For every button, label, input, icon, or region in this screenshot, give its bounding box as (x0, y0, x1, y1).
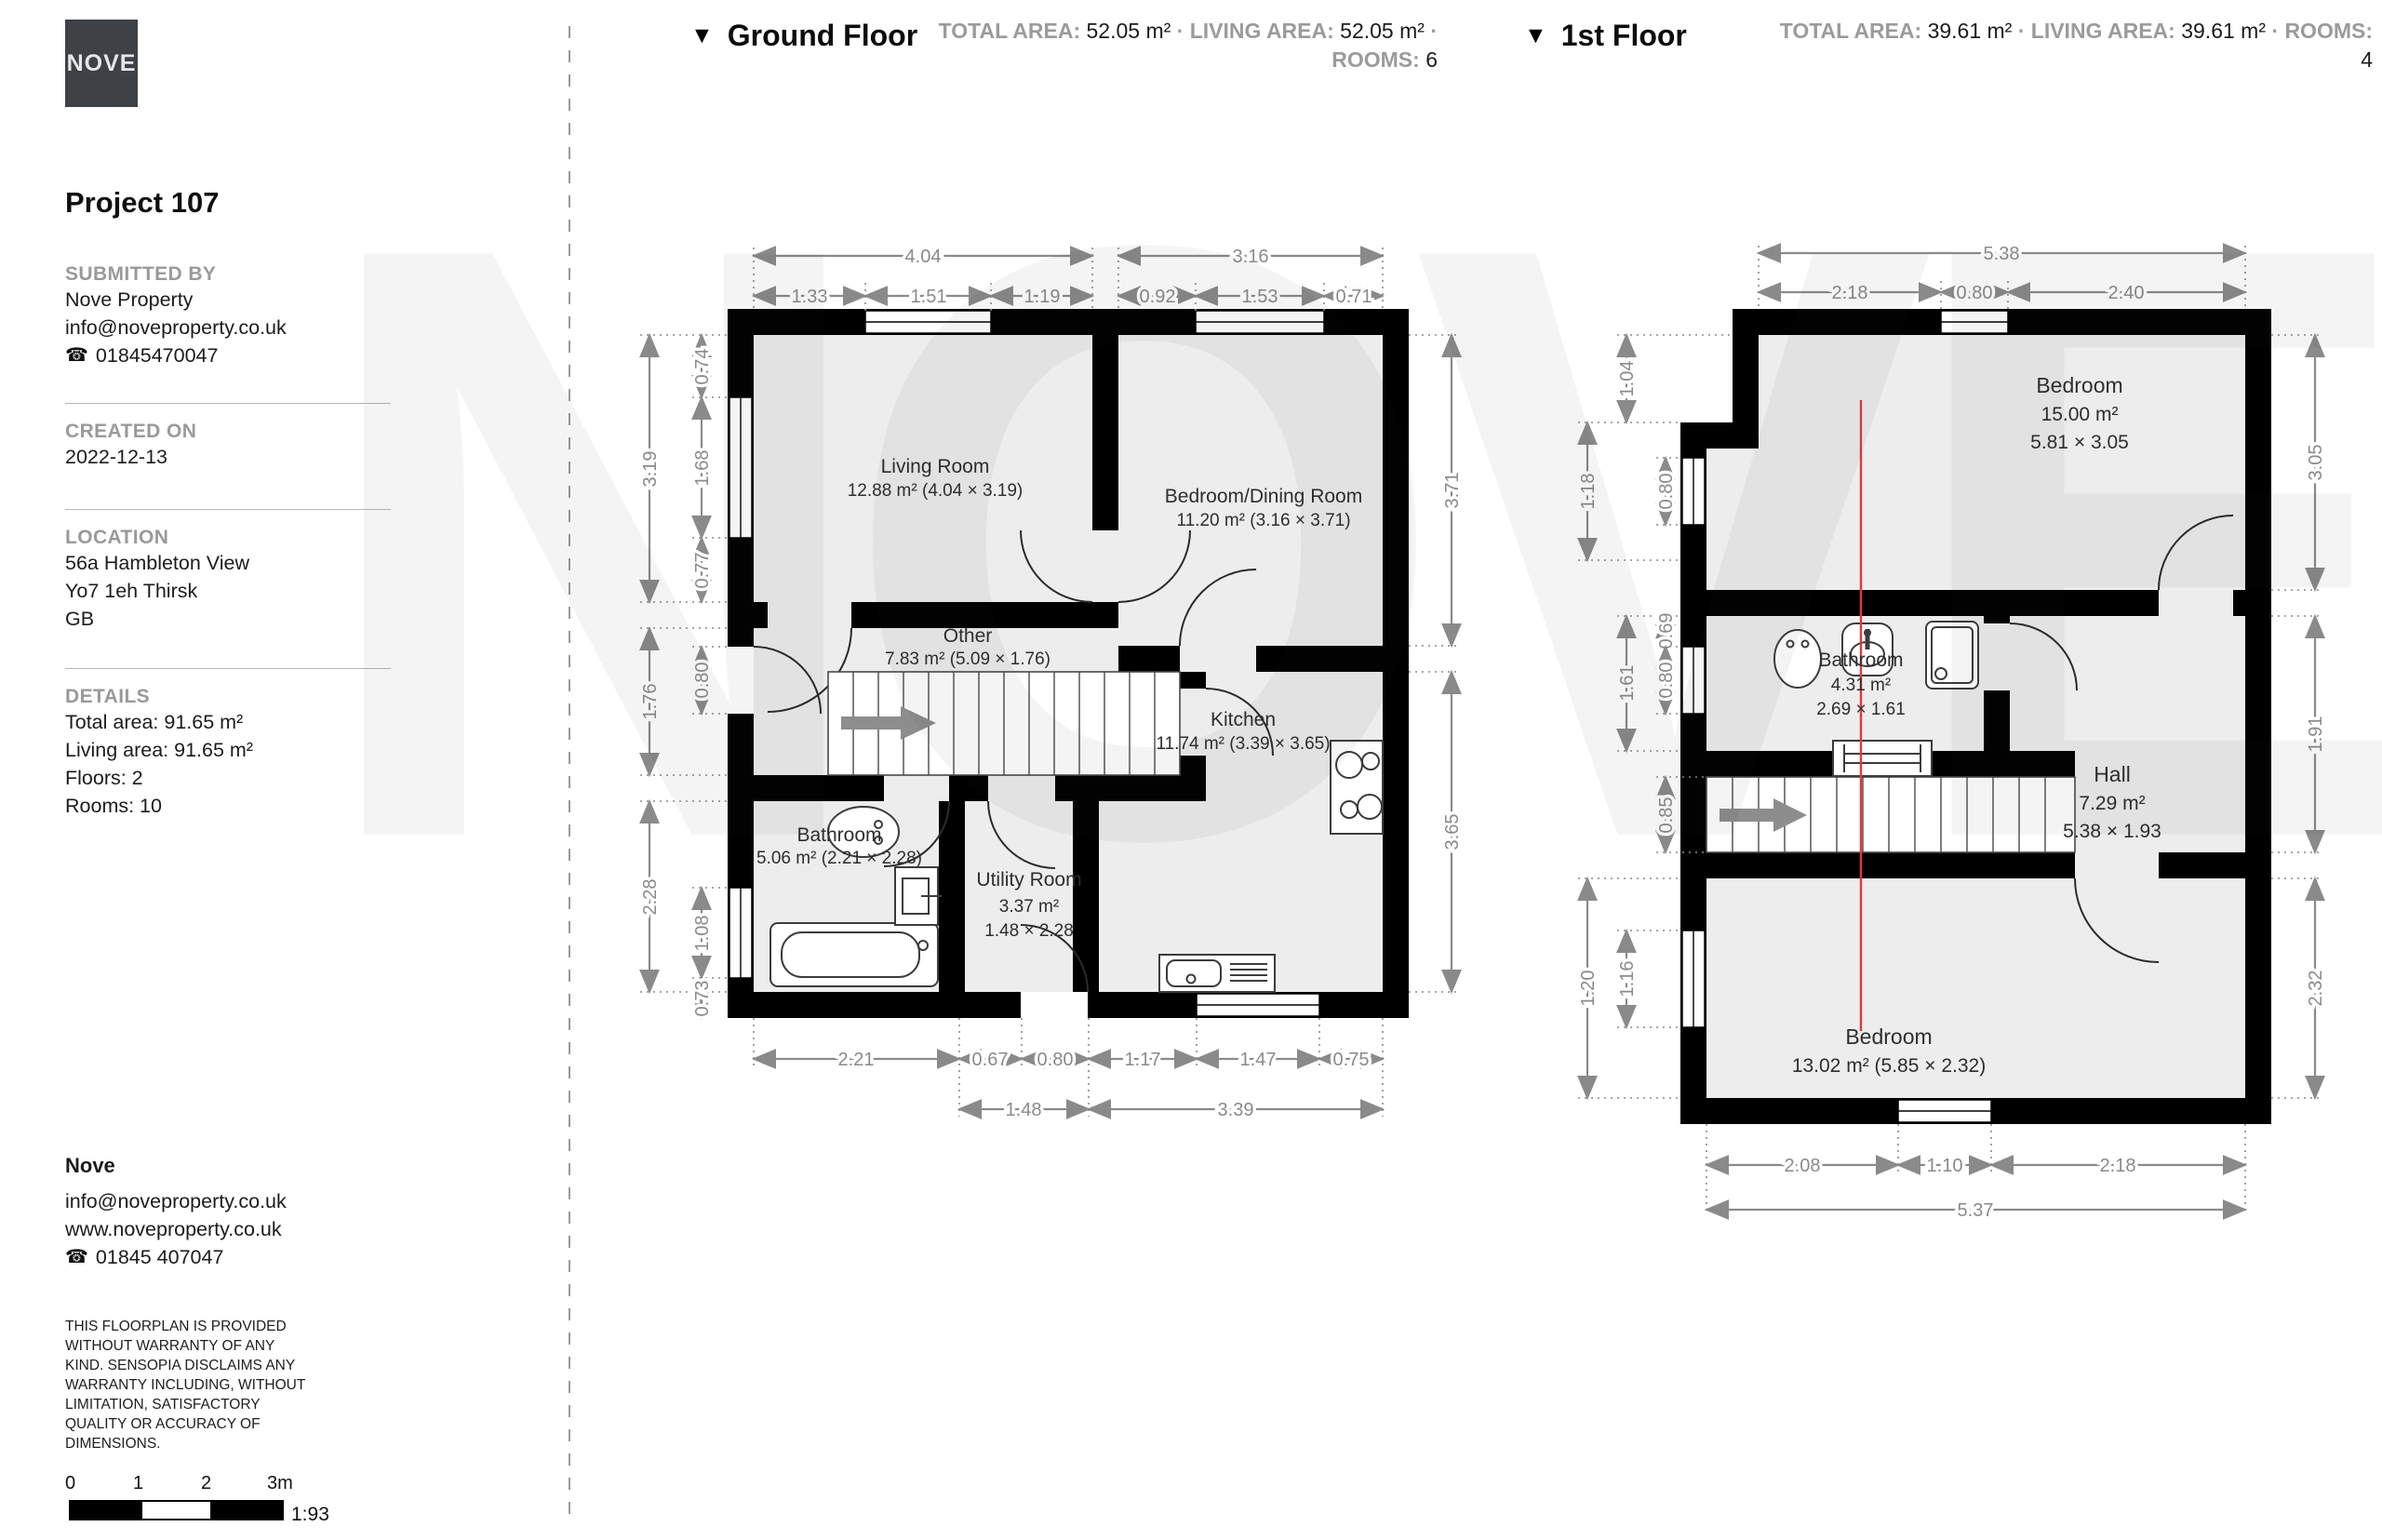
svg-text:1.61: 1.61 (1617, 665, 1638, 702)
svg-text:0.80: 0.80 (1037, 1050, 1074, 1070)
stats-separator: · (2018, 19, 2026, 43)
scale-tick-0: 0 (65, 1473, 75, 1494)
project-title: Project 107 (65, 186, 219, 220)
room-label-living: Living Room (881, 456, 990, 477)
svg-text:0.80: 0.80 (692, 663, 713, 699)
submitted-by-email: info@noveproperty.co.uk (65, 314, 287, 341)
ff-total-area-value: 39.61 m² (1928, 19, 2013, 43)
svg-text:1.20: 1.20 (1578, 971, 1599, 1007)
section-divider (65, 668, 391, 669)
scale-tick-3: 3m (267, 1473, 293, 1494)
room-area-utility: 3.37 m² (999, 897, 1059, 917)
room-dims-utility: 1.48 × 2.28 (984, 921, 1074, 941)
created-on-label: CREATED ON (65, 421, 196, 443)
room-area-kitchen: 11.74 m² (3.39 × 3.65) (1156, 734, 1330, 754)
created-on-date: 2022-12-13 (65, 443, 196, 471)
gf-stairs (828, 672, 1180, 775)
room-label-bedroom-top: Bedroom (2036, 373, 2122, 397)
stats-separator: · (1430, 19, 1438, 43)
floor-marker-icon: ▼ (1524, 22, 1547, 49)
scale-tick-1: 1 (133, 1473, 143, 1494)
svg-text:1.16: 1.16 (1617, 961, 1638, 998)
svg-text:1.76: 1.76 (640, 684, 661, 720)
ff-toilet-icon (1774, 630, 1821, 688)
ff-shower-icon (1926, 622, 1978, 689)
location-section: LOCATION 56a Hambleton View Yo7 1eh Thir… (65, 527, 249, 633)
gf-rooms-label: ROOMS: (1332, 47, 1420, 72)
svg-text:0.71: 0.71 (1336, 287, 1372, 307)
ff-living-area-label: LIVING AREA: (2031, 19, 2175, 43)
svg-text:0.80: 0.80 (1957, 283, 1993, 303)
room-area-bathroom-ff: 4.31 m² (1831, 676, 1891, 695)
submitted-by-phone: 01845470047 (96, 341, 219, 369)
submitted-by-label: SUBMITTED BY (65, 263, 287, 286)
first-floor-title: 1st Floor (1561, 19, 1687, 53)
room-area-bedroom-dining: 11.20 m² (3.16 × 3.71) (1176, 511, 1350, 530)
room-label-hall: Hall (2094, 762, 2131, 786)
svg-text:0.75: 0.75 (1333, 1050, 1370, 1070)
svg-text:1.51: 1.51 (911, 287, 947, 307)
scale-bar-segment (141, 1500, 212, 1520)
svg-text:0.69: 0.69 (1656, 613, 1677, 649)
ff-towel-rail-icon (1833, 741, 1932, 776)
ff-floor-area (1680, 309, 2271, 1124)
gf-hob-icon (1331, 741, 1383, 834)
svg-text:1.18: 1.18 (1578, 474, 1599, 510)
svg-text:3.65: 3.65 (1442, 814, 1463, 850)
svg-text:1.10: 1.10 (1927, 1156, 1963, 1176)
svg-text:1.68: 1.68 (692, 450, 713, 487)
location-address3: GB (65, 605, 249, 633)
footer-company: Nove (65, 1152, 287, 1180)
svg-text:1.53: 1.53 (1242, 287, 1278, 307)
details-floors: Floors: 2 (65, 764, 253, 792)
room-label-bathroom: Bathroom (796, 824, 881, 846)
scale-ratio: 1:93 (291, 1504, 329, 1526)
svg-text:3.16: 3.16 (1233, 247, 1269, 267)
footer-email: info@noveproperty.co.uk (65, 1187, 287, 1215)
gf-total-area-label: TOTAL AREA: (939, 19, 1080, 43)
svg-text:2.32: 2.32 (2306, 971, 2326, 1007)
svg-text:0.80: 0.80 (1656, 474, 1677, 510)
details-living-area: Living area: 91.65 m² (65, 736, 253, 764)
sidebar-separator (569, 26, 570, 1520)
svg-text:0.80: 0.80 (1656, 663, 1677, 699)
svg-text:0.73: 0.73 (692, 981, 713, 1017)
svg-text:2.28: 2.28 (640, 879, 661, 916)
svg-text:2.18: 2.18 (2100, 1156, 2136, 1176)
room-area-living: 12.88 m² (4.04 × 3.19) (848, 481, 1024, 501)
ground-floor-header: ▼ Ground Floor (690, 19, 917, 53)
nove-logo: NOVE (65, 20, 138, 107)
svg-text:2.40: 2.40 (2108, 283, 2145, 303)
ground-floor-plan: Living Room 12.88 m² (4.04 × 3.19) Bedro… (614, 223, 1498, 1247)
gf-total-area-value: 52.05 m² (1087, 19, 1171, 43)
stats-separator: · (2271, 19, 2279, 43)
room-label-other: Other (943, 625, 993, 647)
svg-text:3.19: 3.19 (640, 451, 661, 488)
ground-floor-stats: TOTAL AREA: 52.05 m² · LIVING AREA: 52.0… (917, 17, 1438, 74)
room-dims-bathroom-ff: 2.69 × 1.61 (1816, 700, 1906, 719)
svg-text:1.48: 1.48 (1006, 1100, 1042, 1120)
details-rooms: Rooms: 10 (65, 792, 253, 820)
ff-total-area-label: TOTAL AREA: (1780, 19, 1921, 43)
gf-sink-icon (895, 867, 942, 925)
room-dims-hall: 5.38 × 1.93 (2063, 821, 2161, 842)
svg-text:3.71: 3.71 (1442, 473, 1463, 509)
phone-icon: ☎ (65, 1243, 88, 1271)
section-divider (65, 509, 391, 510)
details-section: DETAILS Total area: 91.65 m² Living area… (65, 686, 253, 820)
svg-text:0.74: 0.74 (692, 349, 713, 385)
scale-bar-segment (69, 1500, 141, 1520)
location-address1: 56a Hambleton View (65, 549, 249, 577)
first-floor-plan: Bedroom 15.00 m² 5.81 × 3.05 Bathroom 4.… (1554, 223, 2373, 1247)
room-dims-bedroom-top: 5.81 × 3.05 (2030, 432, 2129, 453)
svg-text:5.38: 5.38 (1984, 244, 2020, 264)
footer-contact: Nove info@noveproperty.co.uk www.novepro… (65, 1152, 287, 1271)
gf-living-area-value: 52.05 m² (1340, 19, 1425, 43)
floorplan-page: NOVE Project 107 SUBMITTED BY Nove Prope… (0, 0, 2382, 1540)
svg-text:1.47: 1.47 (1240, 1050, 1277, 1070)
room-area-bathroom: 5.06 m² (2.21 × 2.28) (756, 849, 922, 868)
svg-text:2.08: 2.08 (1785, 1156, 1821, 1176)
svg-text:1.19: 1.19 (1024, 287, 1061, 307)
svg-text:1.17: 1.17 (1125, 1050, 1161, 1070)
gf-kitchen-sink-icon (1159, 955, 1275, 992)
section-divider (65, 403, 391, 404)
svg-text:1.91: 1.91 (2306, 716, 2326, 753)
svg-text:1.33: 1.33 (792, 287, 828, 307)
scale-bar-segment (212, 1500, 284, 1520)
room-area-other: 7.83 m² (5.09 × 1.76) (885, 649, 1050, 669)
ground-floor-title: Ground Floor (728, 19, 917, 53)
svg-text:5.37: 5.37 (1958, 1200, 1994, 1221)
footer-phone: 01845 407047 (96, 1243, 224, 1271)
svg-text:3.05: 3.05 (2306, 445, 2326, 481)
room-label-utility: Utility Room (976, 869, 1081, 891)
ff-rooms-label: ROOMS: (2284, 19, 2373, 43)
room-area-hall: 7.29 m² (2079, 793, 2145, 814)
svg-text:4.04: 4.04 (905, 247, 942, 267)
svg-text:0.92: 0.92 (1140, 287, 1176, 307)
room-area-bedroom-bottom: 13.02 m² (5.85 × 2.32) (1792, 1055, 1986, 1077)
room-area-bedroom-top: 15.00 m² (2041, 404, 2119, 425)
footer-website: www.noveproperty.co.uk (65, 1215, 287, 1243)
svg-text:0.77: 0.77 (692, 553, 713, 589)
first-floor-header: ▼ 1st Floor (1524, 19, 1687, 53)
room-label-kitchen: Kitchen (1211, 709, 1276, 730)
ff-stairs (1706, 777, 2075, 852)
scale-tick-2: 2 (201, 1473, 211, 1494)
svg-text:3.39: 3.39 (1218, 1100, 1254, 1120)
svg-text:0.85: 0.85 (1656, 797, 1677, 834)
svg-text:0.67: 0.67 (972, 1050, 1009, 1070)
details-label: DETAILS (65, 686, 253, 708)
room-label-bathroom-ff: Bathroom (1818, 649, 1903, 671)
gf-living-area-label: LIVING AREA: (1190, 19, 1334, 43)
submitted-by-section: SUBMITTED BY Nove Property info@noveprop… (65, 263, 287, 369)
svg-text:1.08: 1.08 (692, 916, 713, 952)
location-address2: Yo7 1eh Thirsk (65, 577, 249, 605)
gf-bathtub-icon (770, 923, 938, 986)
svg-text:1.04: 1.04 (1617, 361, 1638, 397)
ff-rooms-value: 4 (2361, 47, 2373, 72)
room-label-bedroom-bottom: Bedroom (1845, 1024, 1932, 1049)
floor-marker-icon: ▼ (690, 22, 714, 49)
details-total-area: Total area: 91.65 m² (65, 708, 253, 736)
disclaimer-text: THIS FLOORPLAN IS PROVIDED WITHOUT WARRA… (65, 1317, 307, 1453)
submitted-by-name: Nove Property (65, 286, 287, 314)
room-label-bedroom-dining: Bedroom/Dining Room (1165, 486, 1362, 507)
ff-living-area-value: 39.61 m² (2181, 19, 2266, 43)
gf-rooms-value: 6 (1425, 47, 1438, 72)
svg-text:2.21: 2.21 (838, 1050, 875, 1070)
location-label: LOCATION (65, 527, 249, 549)
phone-icon: ☎ (65, 341, 88, 369)
stats-separator: · (1177, 19, 1184, 43)
svg-text:2.18: 2.18 (1832, 283, 1868, 303)
created-on-section: CREATED ON 2022-12-13 (65, 421, 196, 471)
first-floor-stats: TOTAL AREA: 39.61 m² · LIVING AREA: 39.6… (1698, 17, 2373, 74)
